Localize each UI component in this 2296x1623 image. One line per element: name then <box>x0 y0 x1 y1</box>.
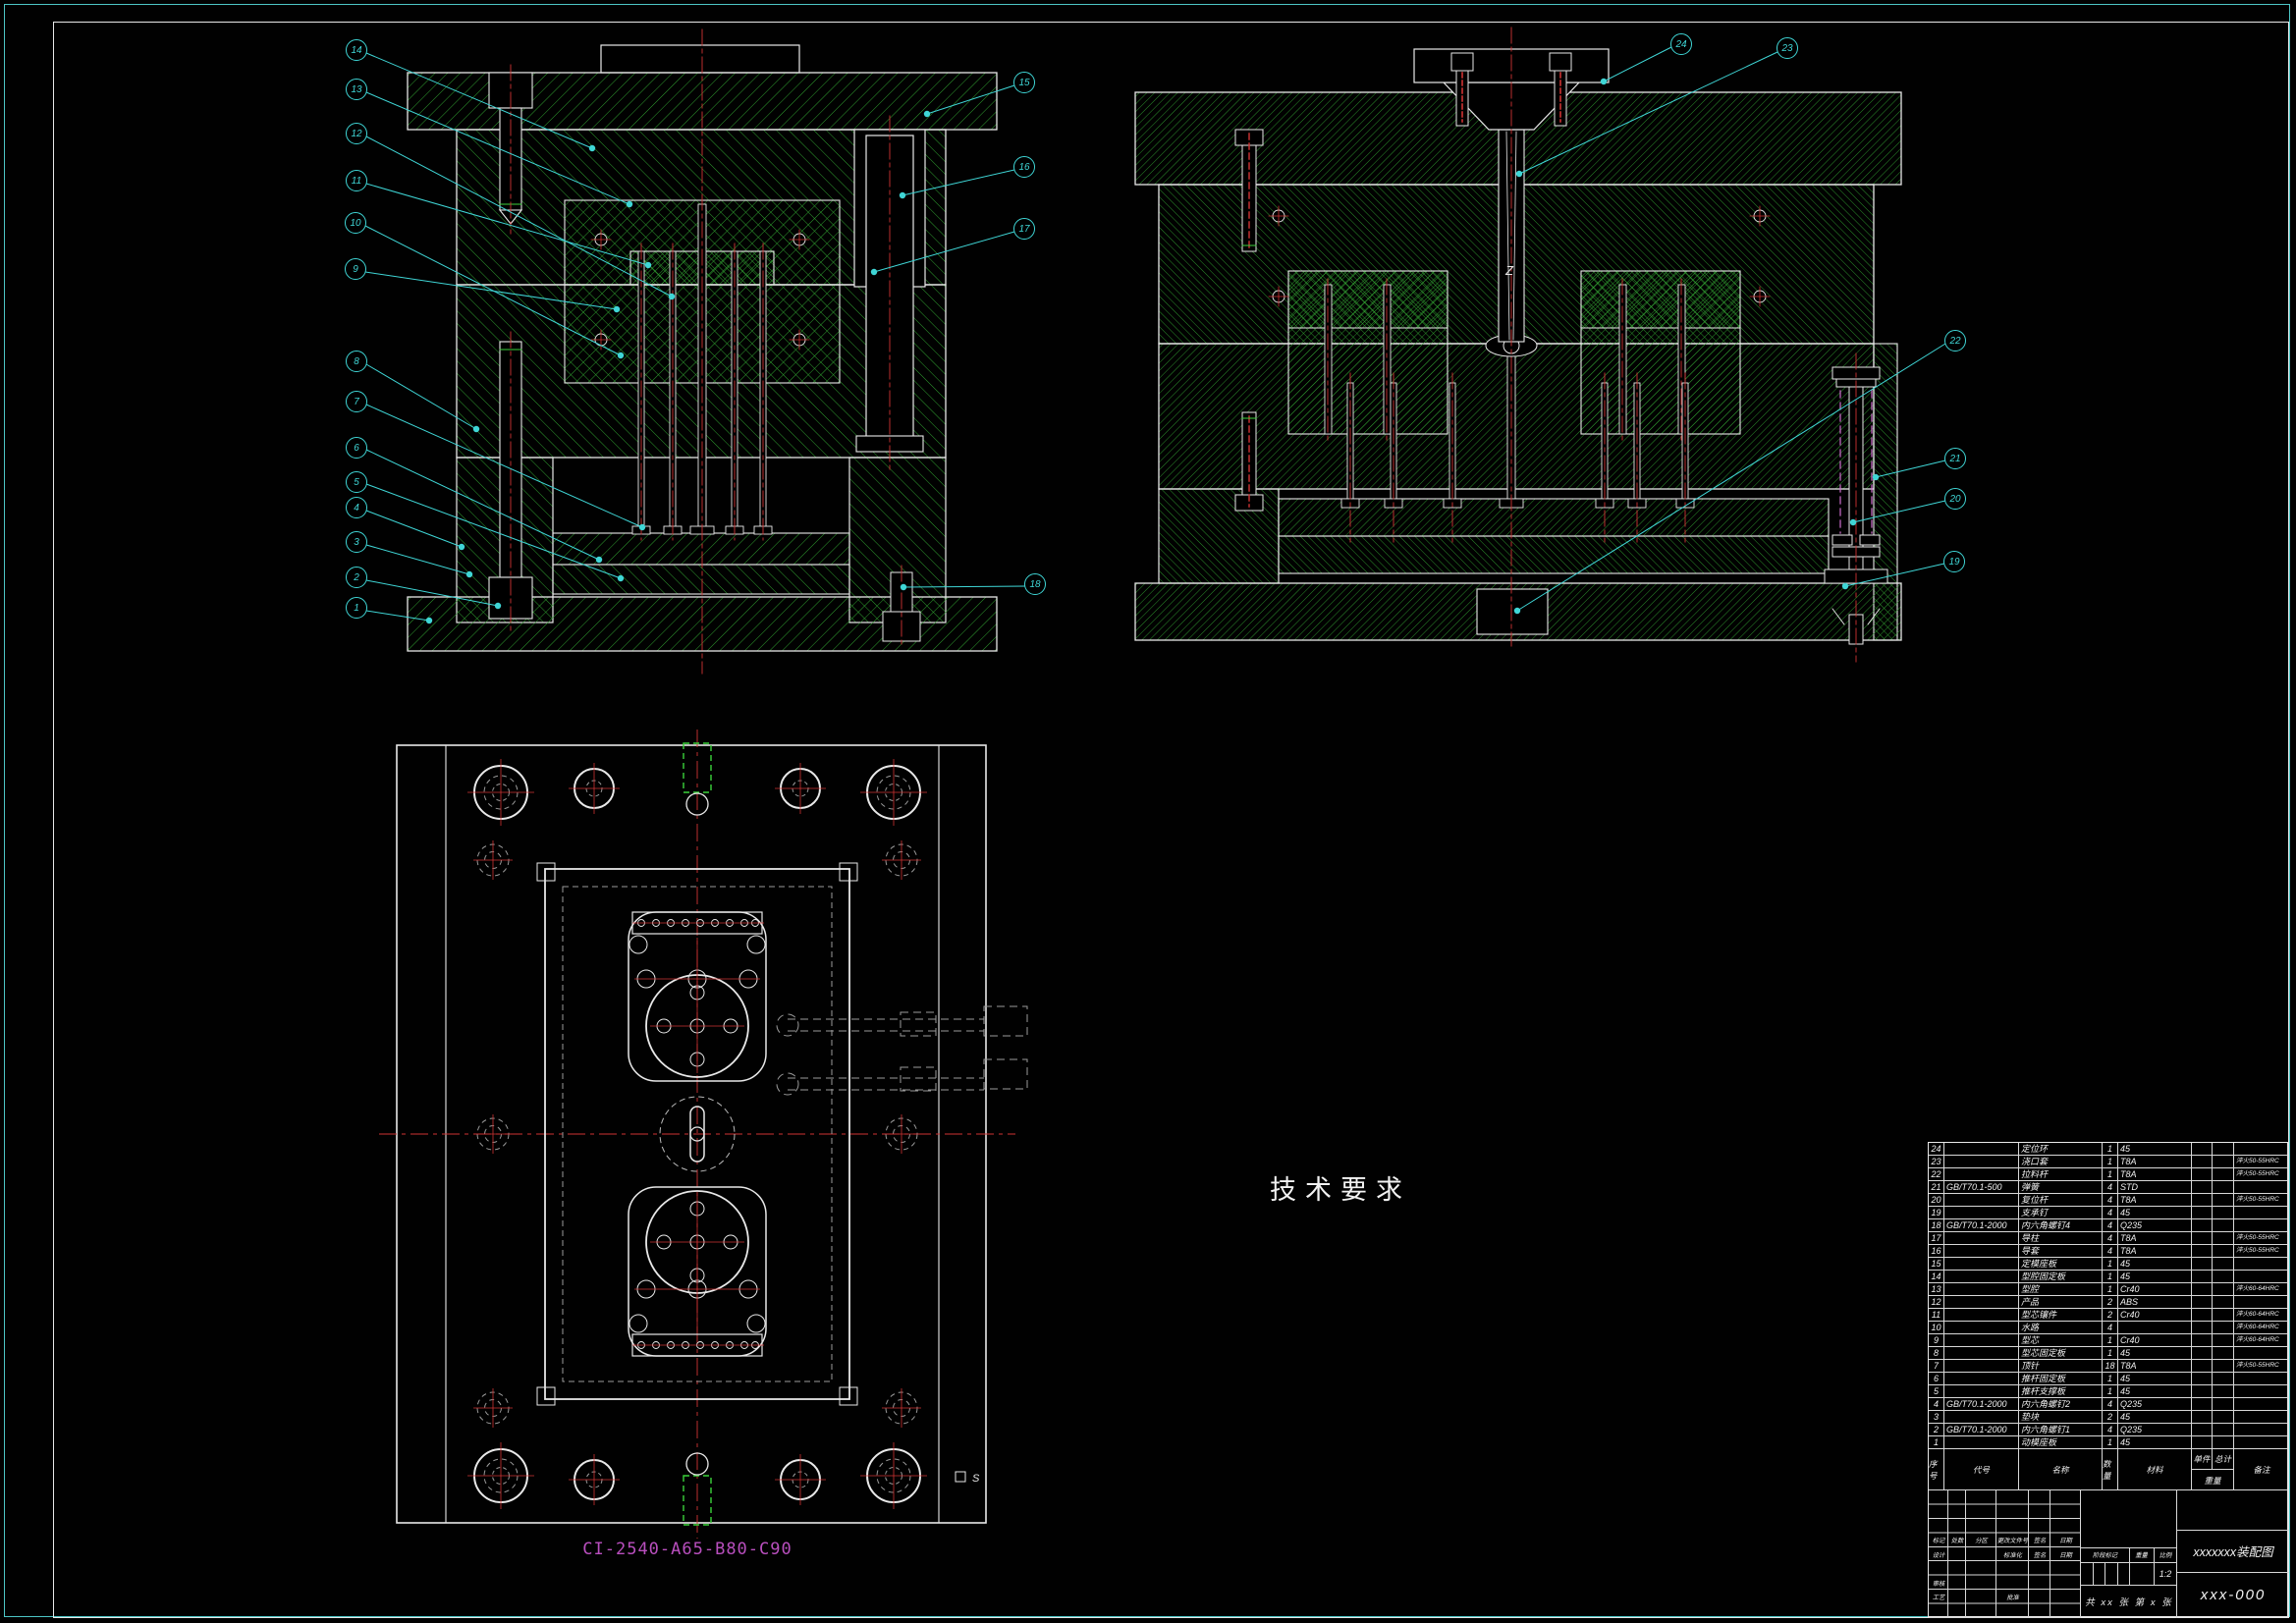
label-sign: 签名 <box>2029 1533 2050 1546</box>
plan-s-mark: S <box>972 1473 980 1485</box>
part-code <box>1944 1245 2019 1257</box>
part-remark: 淬火50-55HRC <box>2234 1194 2289 1206</box>
part-weight-total <box>2213 1411 2234 1423</box>
part-seq: 2 <box>1929 1424 1944 1435</box>
part-code <box>1944 1436 2019 1448</box>
part-name: 浇口套 <box>2019 1156 2103 1167</box>
part-weight-total <box>2213 1156 2234 1167</box>
part-qty: 4 <box>2103 1181 2118 1193</box>
balloon-21: 21 <box>1944 448 1966 469</box>
balloon-22: 22 <box>1944 330 1966 352</box>
balloon-1: 1 <box>346 597 367 619</box>
part-qty: 18 <box>2103 1360 2118 1372</box>
part-remark <box>2234 1347 2289 1359</box>
part-remark: 淬火60-64HRC <box>2234 1334 2289 1346</box>
header-weight-total: 总计 <box>2213 1449 2234 1470</box>
part-code <box>1944 1271 2019 1282</box>
part-code <box>1944 1411 2019 1423</box>
section-view-right: Z <box>1135 27 1901 662</box>
part-qty: 2 <box>2103 1411 2118 1423</box>
parts-list-row: 3 垫块 2 45 <box>1929 1411 2287 1424</box>
part-material: T8A <box>2118 1156 2192 1167</box>
part-remark <box>2234 1258 2289 1270</box>
part-weight-unit <box>2192 1143 2213 1155</box>
balloon-12: 12 <box>346 123 367 144</box>
part-code: GB/T70.1-500 <box>1944 1181 2019 1193</box>
part-weight-total <box>2213 1296 2234 1308</box>
part-qty: 2 <box>2103 1309 2118 1321</box>
part-name: 内六角螺钉1 <box>2019 1424 2103 1435</box>
parts-list-row: 8 型芯固定板 1 45 <box>1929 1347 2287 1360</box>
part-qty: 1 <box>2103 1436 2118 1448</box>
part-code <box>1944 1334 2019 1346</box>
part-weight-total <box>2213 1360 2234 1372</box>
part-weight-total <box>2213 1219 2234 1231</box>
sprue-z-mark: Z <box>1504 263 1514 278</box>
label-approve: 批准 <box>1996 1590 2029 1603</box>
part-seq: 12 <box>1929 1296 1944 1308</box>
balloon-10: 10 <box>345 212 366 234</box>
part-qty: 1 <box>2103 1385 2118 1397</box>
balloon-13: 13 <box>346 79 367 100</box>
part-remark <box>2234 1271 2289 1282</box>
balloon-11: 11 <box>346 170 367 191</box>
balloon-6: 6 <box>346 437 367 459</box>
part-name: 导柱 <box>2019 1232 2103 1244</box>
part-weight-unit <box>2192 1309 2213 1321</box>
part-code <box>1944 1258 2019 1270</box>
part-material: 45 <box>2118 1347 2192 1359</box>
part-material <box>2118 1322 2192 1333</box>
part-name: 产品 <box>2019 1296 2103 1308</box>
part-code <box>1944 1194 2019 1206</box>
part-qty: 1 <box>2103 1347 2118 1359</box>
part-weight-unit <box>2192 1181 2213 1193</box>
part-material: T8A <box>2118 1232 2192 1244</box>
part-code <box>1944 1168 2019 1180</box>
header-name: 名称 <box>2019 1449 2103 1490</box>
part-weight-total <box>2213 1322 2234 1333</box>
label-mark: 标记 <box>1929 1533 1948 1546</box>
part-seq: 13 <box>1929 1283 1944 1295</box>
part-weight-total <box>2213 1334 2234 1346</box>
part-code <box>1944 1373 2019 1384</box>
part-material: 45 <box>2118 1411 2192 1423</box>
part-code <box>1944 1207 2019 1218</box>
parts-list-row: 1 动模座板 1 45 <box>1929 1436 2287 1449</box>
part-remark <box>2234 1181 2289 1193</box>
parts-list-row: 23 浇口套 1 T8A 淬火50-55HRC <box>1929 1156 2287 1168</box>
part-name: 导套 <box>2019 1245 2103 1257</box>
balloon-5: 5 <box>346 471 367 493</box>
title-block-stage-section: 阶段标记 重量 比例 1:2 共 xx 张 第 x 张 <box>2081 1490 2177 1618</box>
part-weight-total <box>2213 1271 2234 1282</box>
part-weight-total <box>2213 1398 2234 1410</box>
part-name: 型腔 <box>2019 1283 2103 1295</box>
part-name: 复位杆 <box>2019 1194 2103 1206</box>
part-weight-unit <box>2192 1258 2213 1270</box>
part-material: 45 <box>2118 1436 2192 1448</box>
header-weight: 重量 <box>2192 1470 2234 1490</box>
part-code <box>1944 1296 2019 1308</box>
part-qty: 2 <box>2103 1296 2118 1308</box>
part-seq: 22 <box>1929 1168 1944 1180</box>
part-weight-unit <box>2192 1334 2213 1346</box>
part-weight-total <box>2213 1424 2234 1435</box>
tech-requirements-title: 技术要求 <box>1270 1168 1849 1207</box>
part-qty: 4 <box>2103 1219 2118 1231</box>
part-code: GB/T70.1-2000 <box>1944 1219 2019 1231</box>
sheet-info: 共 xx 张 第 x 张 <box>2081 1585 2177 1618</box>
part-name: 顶针 <box>2019 1360 2103 1372</box>
part-remark <box>2234 1296 2289 1308</box>
part-weight-total <box>2213 1232 2234 1244</box>
header-material: 材料 <box>2118 1449 2192 1490</box>
part-weight-total <box>2213 1245 2234 1257</box>
part-remark: 淬火50-55HRC <box>2234 1245 2289 1257</box>
part-material: ABS <box>2118 1296 2192 1308</box>
part-material: Cr40 <box>2118 1334 2192 1346</box>
parts-list-row: 20 复位杆 4 T8A 淬火50-55HRC <box>1929 1194 2287 1207</box>
parts-list-row: 2 GB/T70.1-2000 内六角螺钉1 4 Q235 <box>1929 1424 2287 1436</box>
part-code: GB/T70.1-2000 <box>1944 1424 2019 1435</box>
part-qty: 1 <box>2103 1156 2118 1167</box>
part-weight-unit <box>2192 1424 2213 1435</box>
part-qty: 4 <box>2103 1232 2118 1244</box>
part-weight-unit <box>2192 1168 2213 1180</box>
part-material: 45 <box>2118 1207 2192 1218</box>
part-name: 拉料杆 <box>2019 1168 2103 1180</box>
part-weight-total <box>2213 1168 2234 1180</box>
part-name: 动模座板 <box>2019 1436 2103 1448</box>
part-seq: 14 <box>1929 1271 1944 1282</box>
part-code <box>1944 1347 2019 1359</box>
part-weight-unit <box>2192 1322 2213 1333</box>
parts-list-row: 10 水路 4 淬火60-64HRC <box>1929 1322 2287 1334</box>
part-qty: 1 <box>2103 1334 2118 1346</box>
part-material: Cr40 <box>2118 1283 2192 1295</box>
part-remark <box>2234 1373 2289 1384</box>
part-qty: 1 <box>2103 1373 2118 1384</box>
part-name: 推杆固定板 <box>2019 1373 2103 1384</box>
balloon-8: 8 <box>346 351 367 372</box>
header-remark: 备注 <box>2234 1449 2289 1490</box>
part-weight-total <box>2213 1143 2234 1155</box>
balloon-15: 15 <box>1013 72 1035 93</box>
part-seq: 3 <box>1929 1411 1944 1423</box>
part-weight-unit <box>2192 1360 2213 1372</box>
part-qty: 1 <box>2103 1258 2118 1270</box>
parts-list-row: 21 GB/T70.1-500 弹簧 4 STD <box>1929 1181 2287 1194</box>
title-block-name-section: xxxxxxx装配图 xxx-000 <box>2177 1490 2289 1618</box>
label-standardize: 标准化 <box>1996 1547 2029 1561</box>
part-remark: 淬火50-55HRC <box>2234 1156 2289 1167</box>
part-weight-unit <box>2192 1296 2213 1308</box>
section-view-left <box>408 29 997 674</box>
part-code: GB/T70.1-2000 <box>1944 1398 2019 1410</box>
part-remark <box>2234 1436 2289 1448</box>
part-weight-unit <box>2192 1271 2213 1282</box>
balloon-17: 17 <box>1013 218 1035 240</box>
part-material: T8A <box>2118 1245 2192 1257</box>
part-name: 型芯固定板 <box>2019 1347 2103 1359</box>
header-qty: 数量 <box>2103 1449 2118 1490</box>
part-seq: 23 <box>1929 1156 1944 1167</box>
parts-list-row: 9 型芯 1 Cr40 淬火60-64HRC <box>1929 1334 2287 1347</box>
label-zone: 分区 <box>1966 1533 1996 1546</box>
parts-list-row: 18 GB/T70.1-2000 内六角螺钉4 4 Q235 <box>1929 1219 2287 1232</box>
part-code <box>1944 1283 2019 1295</box>
part-remark <box>2234 1385 2289 1397</box>
label-design: 设计 <box>1929 1547 1948 1561</box>
parts-list-row: 14 型腔固定板 1 45 <box>1929 1271 2287 1283</box>
part-name: 内六角螺钉4 <box>2019 1219 2103 1231</box>
label-weight: 重量 <box>2129 1547 2154 1562</box>
part-seq: 15 <box>1929 1258 1944 1270</box>
balloon-3: 3 <box>346 531 367 553</box>
part-qty: 4 <box>2103 1322 2118 1333</box>
part-qty: 4 <box>2103 1194 2118 1206</box>
part-qty: 4 <box>2103 1245 2118 1257</box>
header-code: 代号 <box>1944 1449 2019 1490</box>
part-remark <box>2234 1219 2289 1231</box>
part-material: T8A <box>2118 1168 2192 1180</box>
part-name: 垫块 <box>2019 1411 2103 1423</box>
part-code <box>1944 1143 2019 1155</box>
parts-list-row: 12 产品 2 ABS <box>1929 1296 2287 1309</box>
header-weight-unit: 单件 <box>2192 1449 2213 1470</box>
part-code <box>1944 1156 2019 1167</box>
part-code <box>1944 1385 2019 1397</box>
parts-list-and-title-block: 24 定位环 1 45 23 浇口套 1 T8A 淬火50-55HR <box>1928 1142 2288 1617</box>
part-weight-total <box>2213 1373 2234 1384</box>
part-weight-unit <box>2192 1347 2213 1359</box>
part-code <box>1944 1360 2019 1372</box>
part-remark: 淬火60-64HRC <box>2234 1322 2289 1333</box>
parts-list-row: 7 顶针 18 T8A 淬火50-55HRC <box>1929 1360 2287 1373</box>
balloon-7: 7 <box>346 391 367 412</box>
part-weight-total <box>2213 1181 2234 1193</box>
part-seq: 5 <box>1929 1385 1944 1397</box>
part-material: T8A <box>2118 1194 2192 1206</box>
part-weight-unit <box>2192 1398 2213 1410</box>
balloon-4: 4 <box>346 497 367 518</box>
parts-list-row: 13 型腔 1 Cr40 淬火60-64HRC <box>1929 1283 2287 1296</box>
part-material: Q235 <box>2118 1398 2192 1410</box>
part-weight-total <box>2213 1194 2234 1206</box>
part-seq: 10 <box>1929 1322 1944 1333</box>
part-name: 型腔固定板 <box>2019 1271 2103 1282</box>
label-scale: 比例 <box>2154 1547 2177 1562</box>
part-seq: 20 <box>1929 1194 1944 1206</box>
part-material: Q235 <box>2118 1219 2192 1231</box>
part-remark <box>2234 1411 2289 1423</box>
label-count: 处数 <box>1948 1533 1966 1546</box>
part-weight-unit <box>2192 1219 2213 1231</box>
part-weight-unit <box>2192 1385 2213 1397</box>
part-weight-unit <box>2192 1283 2213 1295</box>
part-code <box>1944 1232 2019 1244</box>
part-name: 定模座板 <box>2019 1258 2103 1270</box>
part-seq: 9 <box>1929 1334 1944 1346</box>
part-qty: 4 <box>2103 1207 2118 1218</box>
part-weight-unit <box>2192 1207 2213 1218</box>
part-weight-unit <box>2192 1436 2213 1448</box>
part-material: 45 <box>2118 1385 2192 1397</box>
part-seq: 17 <box>1929 1232 1944 1244</box>
drawing-sheet: Z <box>0 0 2296 1623</box>
part-material: 45 <box>2118 1271 2192 1282</box>
part-name: 型芯镶件 <box>2019 1309 2103 1321</box>
parts-list-row: 15 定模座板 1 45 <box>1929 1258 2287 1271</box>
part-weight-unit <box>2192 1411 2213 1423</box>
parts-list-row: 22 拉料杆 1 T8A 淬火50-55HRC <box>1929 1168 2287 1181</box>
part-remark: 淬火50-55HRC <box>2234 1232 2289 1244</box>
part-weight-total <box>2213 1283 2234 1295</box>
part-material: 45 <box>2118 1258 2192 1270</box>
parts-list-row: 6 推杆固定板 1 45 <box>1929 1373 2287 1385</box>
label-date: 日期 <box>2050 1533 2081 1546</box>
label-process: 工艺 <box>1929 1590 1948 1603</box>
part-remark: 淬火50-55HRC <box>2234 1168 2289 1180</box>
part-weight-unit <box>2192 1156 2213 1167</box>
balloon-9: 9 <box>345 258 366 280</box>
part-weight-total <box>2213 1385 2234 1397</box>
drawing-title: xxxxxxx装配图 <box>2177 1530 2289 1572</box>
part-code <box>1944 1322 2019 1333</box>
part-qty: 1 <box>2103 1271 2118 1282</box>
part-remark <box>2234 1143 2289 1155</box>
part-seq: 24 <box>1929 1143 1944 1155</box>
part-name: 内六角螺钉2 <box>2019 1398 2103 1410</box>
part-weight-total <box>2213 1309 2234 1321</box>
part-seq: 19 <box>1929 1207 1944 1218</box>
label-change-file: 更改文件号 <box>1996 1533 2029 1546</box>
part-name: 水路 <box>2019 1322 2103 1333</box>
part-seq: 4 <box>1929 1398 1944 1410</box>
part-material: Cr40 <box>2118 1309 2192 1321</box>
part-weight-total <box>2213 1347 2234 1359</box>
title-block-revision-grid: 标记 处数 分区 更改文件号 签名 日期 设计 标准化 签名 日期 审核 工艺 … <box>1929 1490 2081 1618</box>
header-seq: 序号 <box>1929 1449 1944 1490</box>
balloon-2: 2 <box>346 567 367 588</box>
part-remark: 淬火60-64HRC <box>2234 1309 2289 1321</box>
part-weight-total <box>2213 1258 2234 1270</box>
parts-list-row: 4 GB/T70.1-2000 内六角螺钉2 4 Q235 <box>1929 1398 2287 1411</box>
part-seq: 11 <box>1929 1309 1944 1321</box>
label-stage-mark: 阶段标记 <box>2081 1547 2129 1562</box>
part-seq: 7 <box>1929 1360 1944 1372</box>
part-remark <box>2234 1398 2289 1410</box>
balloon-16: 16 <box>1013 156 1035 178</box>
part-code <box>1944 1309 2019 1321</box>
part-seq: 6 <box>1929 1373 1944 1384</box>
part-remark: 淬火60-64HRC <box>2234 1283 2289 1295</box>
part-seq: 8 <box>1929 1347 1944 1359</box>
part-name: 支承钉 <box>2019 1207 2103 1218</box>
part-material: T8A <box>2118 1360 2192 1372</box>
part-material: 45 <box>2118 1373 2192 1384</box>
part-name: 推杆支撑板 <box>2019 1385 2103 1397</box>
parts-list-row: 24 定位环 1 45 <box>1929 1143 2287 1156</box>
parts-list-row: 16 导套 4 T8A 淬火50-55HRC <box>1929 1245 2287 1258</box>
parts-list: 24 定位环 1 45 23 浇口套 1 T8A 淬火50-55HR <box>1929 1143 2287 1449</box>
balloon-24: 24 <box>1670 33 1692 55</box>
part-seq: 18 <box>1929 1219 1944 1231</box>
parts-list-header: 序号 代号 名称 数量 材料 单件 总计 重量 备注 <box>1929 1449 2287 1490</box>
technical-requirements: 技术要求 <box>1270 1168 1849 1240</box>
part-remark <box>2234 1424 2289 1435</box>
part-weight-unit <box>2192 1373 2213 1384</box>
part-remark: 淬火50-55HRC <box>2234 1360 2289 1372</box>
part-weight-unit <box>2192 1194 2213 1206</box>
part-seq: 16 <box>1929 1245 1944 1257</box>
part-name: 型芯 <box>2019 1334 2103 1346</box>
part-remark <box>2234 1207 2289 1218</box>
parts-list-row: 17 导柱 4 T8A 淬火50-55HRC <box>1929 1232 2287 1245</box>
balloon-23: 23 <box>1777 37 1798 59</box>
part-name: 弹簧 <box>2019 1181 2103 1193</box>
balloon-18: 18 <box>1024 573 1046 595</box>
part-qty: 1 <box>2103 1168 2118 1180</box>
balloon-19: 19 <box>1943 551 1965 572</box>
scale-value: 1:2 <box>2154 1562 2177 1585</box>
part-name: 定位环 <box>2019 1143 2103 1155</box>
part-weight-total <box>2213 1207 2234 1218</box>
part-qty: 1 <box>2103 1283 2118 1295</box>
part-qty: 4 <box>2103 1424 2118 1435</box>
label-audit: 审核 <box>1929 1576 1948 1590</box>
part-weight-total <box>2213 1436 2234 1448</box>
balloon-20: 20 <box>1944 488 1966 510</box>
mold-base-code-label: CI-2540-A65-B80-C90 <box>545 1540 830 1559</box>
part-material: Q235 <box>2118 1424 2192 1435</box>
plan-view: S <box>379 730 1027 1539</box>
part-material: 45 <box>2118 1143 2192 1155</box>
parts-list-row: 11 型芯镶件 2 Cr40 淬火60-64HRC <box>1929 1309 2287 1322</box>
parts-list-row: 19 支承钉 4 45 <box>1929 1207 2287 1219</box>
title-block: 标记 处数 分区 更改文件号 签名 日期 设计 标准化 签名 日期 审核 工艺 … <box>1929 1490 2289 1618</box>
part-material: STD <box>2118 1181 2192 1193</box>
drawing-number: xxx-000 <box>2177 1572 2289 1618</box>
part-seq: 21 <box>1929 1181 1944 1193</box>
label-date-2: 日期 <box>2050 1547 2081 1561</box>
part-seq: 1 <box>1929 1436 1944 1448</box>
part-weight-unit <box>2192 1245 2213 1257</box>
label-sign-2: 签名 <box>2029 1547 2050 1561</box>
part-qty: 4 <box>2103 1398 2118 1410</box>
balloon-14: 14 <box>346 39 367 61</box>
part-qty: 1 <box>2103 1143 2118 1155</box>
parts-list-row: 5 推杆支撑板 1 45 <box>1929 1385 2287 1398</box>
part-weight-unit <box>2192 1232 2213 1244</box>
